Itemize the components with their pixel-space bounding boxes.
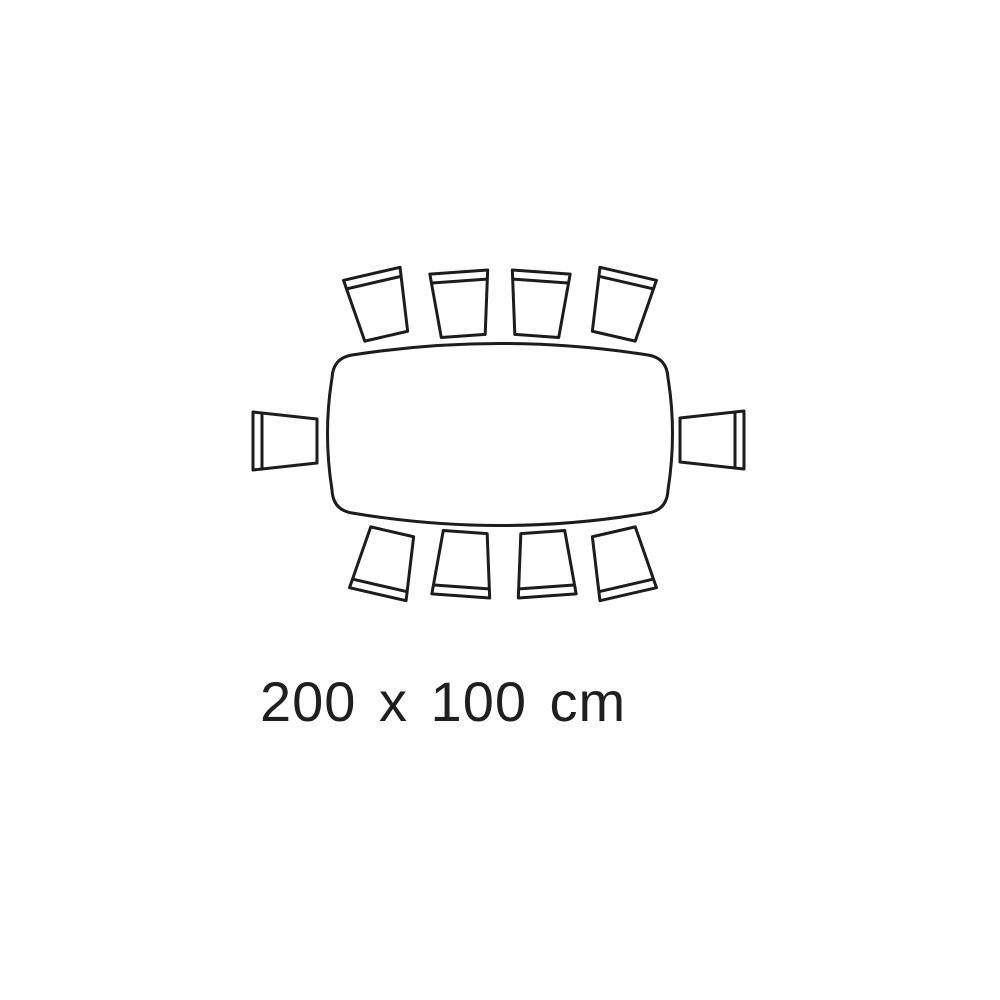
table-plan-diagram: 200 x 100 cm xyxy=(0,0,1000,1000)
chair-top-3-icon xyxy=(508,270,570,338)
table-top xyxy=(328,344,673,526)
chair-top-2-icon xyxy=(430,270,492,338)
seating-plan-drawing xyxy=(0,0,1000,1000)
dimensions-label: 200 x 100 cm xyxy=(260,674,626,730)
chair-top-4-icon xyxy=(586,267,657,342)
chair-bottom-1-icon xyxy=(350,525,421,600)
chair-right-icon xyxy=(680,411,744,469)
chair-bottom-2-icon xyxy=(432,530,494,598)
chair-left-icon xyxy=(253,412,317,470)
chair-bottom-3-icon xyxy=(514,530,576,598)
chair-bottom-4-icon xyxy=(586,525,657,600)
chair-top-1-icon xyxy=(344,267,415,342)
